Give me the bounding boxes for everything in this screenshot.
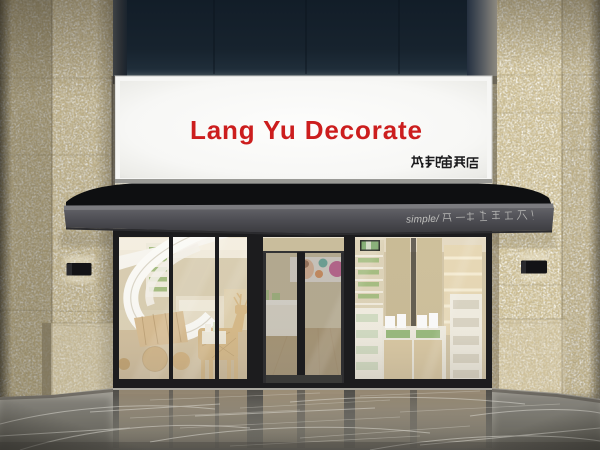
svg-text:Lang Yu Decorate: Lang Yu Decorate <box>190 115 422 145</box>
svg-text:simple/: simple/ <box>406 214 440 226</box>
